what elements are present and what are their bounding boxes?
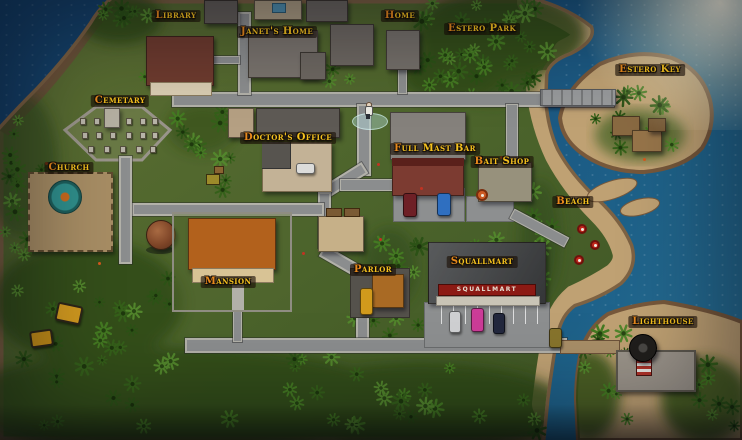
palm-tree-icon xyxy=(169,110,186,127)
tombstone xyxy=(136,146,142,153)
house-building xyxy=(330,24,374,66)
building-roof xyxy=(204,0,238,24)
player-marker xyxy=(364,102,372,120)
hydrant xyxy=(302,252,305,255)
map-label-mansion[interactable]: Mansion xyxy=(201,276,256,288)
bridge-to-estero-key xyxy=(540,89,616,106)
map-label-estero-park[interactable]: Estero Park xyxy=(444,23,520,35)
road-church-street xyxy=(119,156,132,264)
game-map: SQUALLMART LibraryJanet's HomeHomeEstero… xyxy=(0,0,742,440)
office-roof-wedge xyxy=(262,142,291,169)
janets-home-wing xyxy=(300,52,326,80)
tombstone xyxy=(110,132,116,139)
bait-shop-drive xyxy=(506,104,518,162)
lighthouse-tower xyxy=(629,334,657,362)
tombstone xyxy=(82,132,88,139)
library-driveway xyxy=(212,56,240,64)
map-label-lighthouse[interactable]: Lighthouse xyxy=(628,316,697,328)
map-label-bait-shop[interactable]: Bait Shop xyxy=(471,156,534,168)
mansion-driveway xyxy=(233,308,242,342)
picnic-table xyxy=(344,208,360,217)
map-label-home[interactable]: Home xyxy=(381,10,419,22)
tombstone xyxy=(140,118,146,125)
player-legs xyxy=(366,114,370,119)
tombstone xyxy=(152,132,158,139)
tombstone xyxy=(126,118,132,125)
flower-bush xyxy=(643,158,646,161)
home-driveway xyxy=(398,66,407,94)
squallmart-storefront-sign: SQUALLMART xyxy=(438,284,536,296)
maroon-van xyxy=(403,193,417,217)
palm-tree-icon xyxy=(472,409,487,424)
dark-car xyxy=(493,313,505,334)
blue-van xyxy=(437,193,451,216)
crates xyxy=(214,166,224,174)
tombstone xyxy=(140,132,146,139)
island-shack xyxy=(632,130,662,152)
tombstone xyxy=(150,146,156,153)
squallmart-colonnade xyxy=(436,296,540,306)
church-dome xyxy=(48,180,82,214)
parlor-building xyxy=(372,274,404,308)
beach-umbrella-icon xyxy=(577,224,587,234)
tombstone xyxy=(152,118,158,125)
building-roof xyxy=(306,0,348,22)
palm-tree-icon xyxy=(463,48,478,63)
lighthouse-platform xyxy=(616,350,696,392)
pavilion xyxy=(318,216,364,252)
map-label-parlor[interactable]: Parlor xyxy=(350,264,396,276)
library-building xyxy=(146,36,214,86)
pool xyxy=(272,3,286,13)
silver-car xyxy=(449,311,461,333)
picnic-table xyxy=(326,208,342,217)
map-label-janet-s-home[interactable]: Janet's Home xyxy=(237,26,317,38)
palm-tree-icon xyxy=(444,363,454,373)
island-shack xyxy=(648,118,666,132)
palm-tree-icon xyxy=(9,242,20,253)
palm-tree-icon xyxy=(345,417,359,431)
map-label-doctor-s-office[interactable]: Doctor's Office xyxy=(240,132,336,144)
tombstone xyxy=(80,118,86,125)
library-wall xyxy=(150,82,212,96)
palm-tree-icon xyxy=(614,88,633,107)
palm-tree-icon xyxy=(422,78,436,92)
tombstone xyxy=(120,146,126,153)
cemetery-chapel xyxy=(104,108,120,128)
white-car xyxy=(296,163,315,174)
causeway xyxy=(560,340,620,354)
map-label-full-mast-bar[interactable]: Full Mast Bar xyxy=(390,143,480,155)
tombstone xyxy=(96,132,102,139)
beach-umbrella-icon xyxy=(574,255,584,265)
hydrant xyxy=(377,163,380,166)
map-label-squallmart[interactable]: Squallmart xyxy=(447,256,518,268)
map-label-cemetary[interactable]: Cemetary xyxy=(91,95,149,107)
bar-awning xyxy=(392,158,464,166)
palm-tree-icon xyxy=(517,394,530,407)
beach-umbrella-icon xyxy=(590,240,600,250)
map-label-estero-key[interactable]: Estero Key xyxy=(615,64,685,76)
parking-lines xyxy=(430,304,542,324)
pink-car xyxy=(471,308,484,332)
tombstone xyxy=(94,118,100,125)
home-building xyxy=(386,30,420,70)
tombstone xyxy=(126,132,132,139)
map-label-beach[interactable]: Beach xyxy=(552,196,593,208)
flower-bush xyxy=(98,262,101,265)
mansion-building xyxy=(188,218,276,270)
bar-access-road xyxy=(340,179,398,191)
map-label-library[interactable]: Library xyxy=(152,10,201,22)
bait-shop-umbrella-icon xyxy=(476,189,488,201)
tombstone xyxy=(104,146,110,153)
hydrant xyxy=(420,187,423,190)
school-bus xyxy=(360,288,373,315)
tombstone xyxy=(88,146,94,153)
map-label-church[interactable]: Church xyxy=(44,162,93,174)
generator xyxy=(206,174,220,185)
olive-truck xyxy=(549,328,562,348)
hydrant xyxy=(379,238,382,241)
palm-tree-icon xyxy=(416,397,434,415)
loader xyxy=(29,328,54,348)
